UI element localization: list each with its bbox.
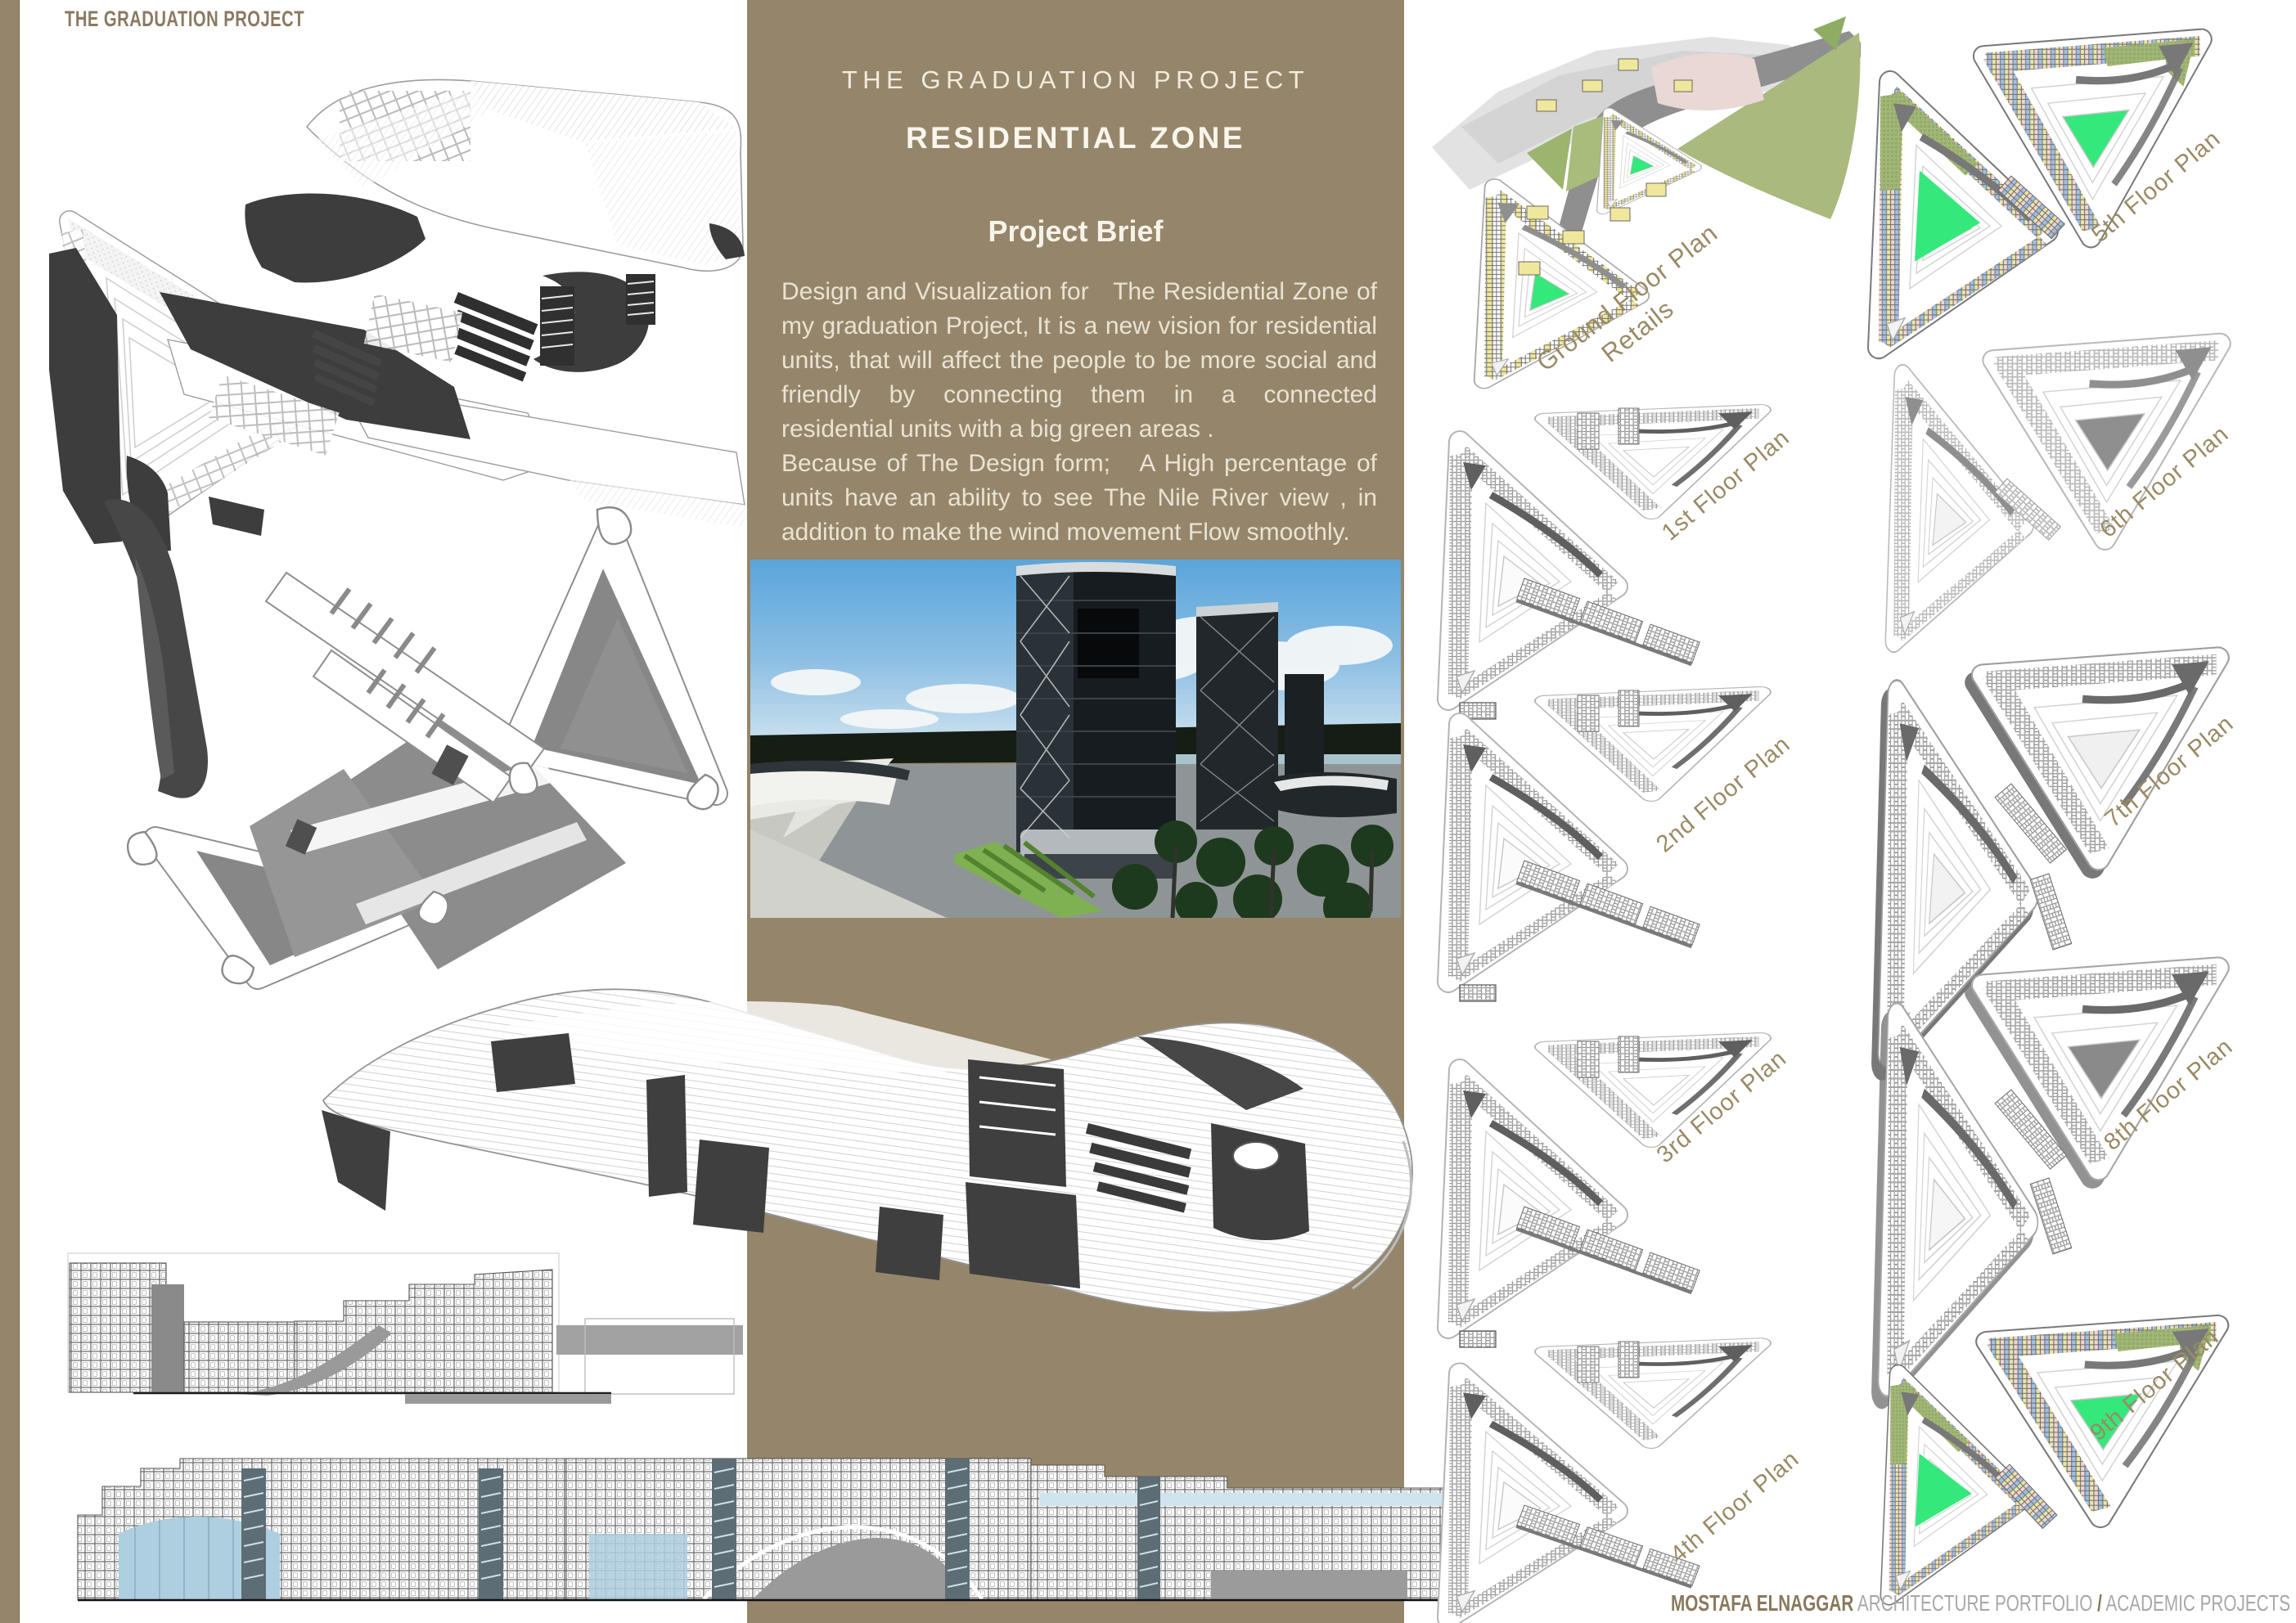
- svg-text:4th Floor Plan: 4th Floor Plan: [1665, 1445, 1804, 1568]
